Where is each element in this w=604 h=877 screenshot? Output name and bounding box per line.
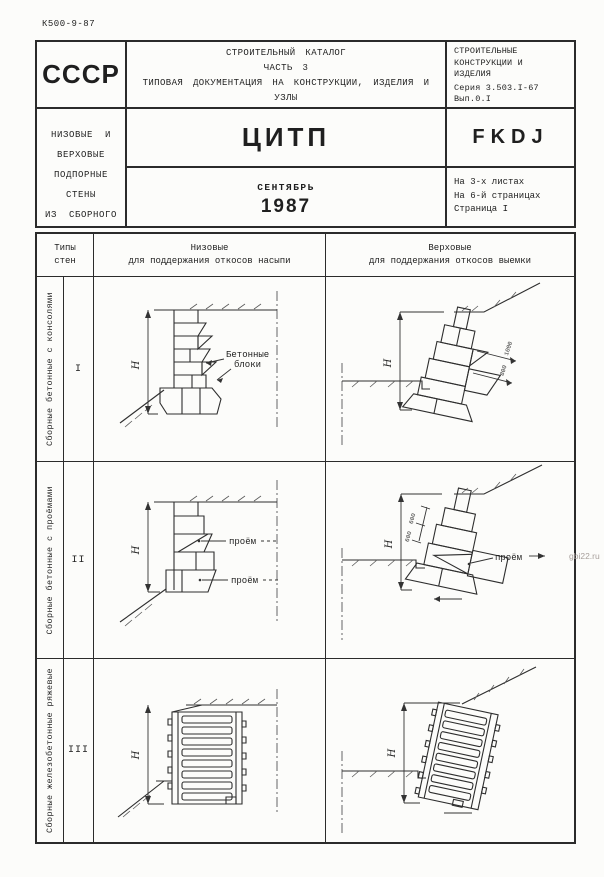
- dim-h-label: Н: [131, 750, 142, 760]
- row3-high-diagram-cell: Н: [326, 659, 574, 842]
- row2-type-label: Сборные бетонные с проёмами: [37, 462, 64, 659]
- header-cell-org: ЦИТП: [127, 109, 447, 168]
- catalog-line2: ЧАСТЬ 3: [127, 61, 445, 76]
- sheets-line1: На 3-х листах: [454, 176, 572, 190]
- doc-code: К500-9-87: [42, 19, 95, 29]
- blocks-callout: Бетонные блоки: [206, 350, 269, 383]
- country-label: СССР: [42, 59, 120, 90]
- ground-hatch: [190, 304, 261, 309]
- header-cell-subject: НИЗОВЫЕ И ВЕРХОВЫЕ ПОДПОРНЫЕ СТЕНЫ ИЗ СБ…: [37, 109, 127, 226]
- opening-label-2: проём: [231, 576, 258, 586]
- low-header-line2: для поддержания откосов насыпи: [128, 255, 290, 268]
- document-page: К500-9-87 СССР СТРОИТЕЛЬНЫЙ КАТАЛОГ ЧАСТ…: [0, 0, 604, 877]
- slope-line: [120, 390, 164, 423]
- height-dimension: Н: [131, 705, 164, 804]
- header-table: СССР СТРОИТЕЛЬНЫЙ КАТАЛОГ ЧАСТЬ 3 ТИПОВА…: [35, 40, 576, 228]
- opening-label: проём: [495, 553, 522, 563]
- year-label: 1987: [261, 196, 311, 218]
- low-header-line1: Низовые: [191, 242, 229, 255]
- slope-line: [120, 589, 166, 622]
- sheets-line3: Страница I: [454, 203, 572, 217]
- row1-high-diagram-cell: 1000 800 Н: [326, 277, 574, 462]
- dim-600-label-1: 600: [408, 512, 418, 525]
- height-dimension: Н: [383, 312, 444, 410]
- ground-line: [342, 381, 430, 389]
- header-cell-series: СТРОИТЕЛЬНЫЕ КОНСТРУКЦИИ И ИЗДЕЛИЯ Серия…: [447, 42, 574, 109]
- diagram-wall-opening-high: 600 600 проём Н: [326, 462, 572, 657]
- crib-wall: [414, 701, 502, 811]
- column-header-high: Верховые для поддержания откосов выемки: [326, 234, 574, 277]
- high-header-line1: Верховые: [428, 242, 471, 255]
- series-line2: КОНСТРУКЦИИ И: [454, 58, 572, 70]
- catalog-line3: ТИПОВАЯ ДОКУМЕНТАЦИЯ НА КОНСТРУКЦИИ, ИЗД…: [127, 76, 445, 106]
- row3-number: III: [64, 659, 94, 842]
- dim-h-label: Н: [131, 360, 142, 370]
- crib-wall: [168, 712, 246, 804]
- header-cell-code: FKDJ: [447, 109, 574, 168]
- opening-label-1: проём: [229, 537, 256, 547]
- ground-hatch: [352, 381, 413, 387]
- diagram-crib-low: Н: [94, 659, 324, 842]
- series-line4: Серия 3.503.I-67: [454, 83, 572, 95]
- ground-line: [172, 705, 277, 712]
- series-code: FKDJ: [472, 126, 548, 149]
- dim-h-label: Н: [387, 748, 398, 758]
- row3-low-diagram-cell: Н: [94, 659, 326, 842]
- header-cell-sheets: На 3-х листах На 6-й страницах Страница …: [447, 168, 574, 226]
- slope-hatch: [474, 669, 524, 700]
- dim-600-label-2: 600: [404, 530, 414, 543]
- offset-dimensions: 600 600: [404, 506, 430, 543]
- ground-hatch: [190, 496, 261, 501]
- diagram-wall-opening-low: Н проём проём: [94, 462, 324, 657]
- high-header-line2: для поддержания откосов выемки: [369, 255, 531, 268]
- height-dimension: Н: [131, 310, 158, 414]
- dim-800-label: 800: [499, 364, 509, 377]
- row1-number: I: [64, 277, 94, 462]
- series-line5: Вып.0.I: [454, 94, 572, 106]
- ground-hatch: [352, 560, 413, 566]
- diagram-wall-console-low: Н Бетонные блоки: [94, 277, 324, 460]
- blocks-label-line2: блоки: [234, 360, 261, 370]
- header-cell-catalog: СТРОИТЕЛЬНЫЙ КАТАЛОГ ЧАСТЬ 3 ТИПОВАЯ ДОК…: [127, 42, 447, 109]
- slope-line: [454, 283, 540, 312]
- header-cell-country: СССР: [37, 42, 127, 109]
- dim-h-label: Н: [384, 539, 395, 549]
- block-wall: [403, 300, 513, 425]
- dim-h-label: Н: [131, 545, 142, 555]
- offset-dimensions: 1000 800: [473, 340, 516, 386]
- types-header-line2: стен: [54, 255, 76, 268]
- dim-1000-label: 1000: [503, 340, 514, 356]
- row2-low-diagram-cell: Н проём проём: [94, 462, 326, 659]
- row1-type-label: Сборные бетонные с консолями: [37, 277, 64, 462]
- height-dimension: Н: [131, 502, 160, 592]
- block-wall: [166, 502, 216, 592]
- month-label: СЕНТЯБРЬ: [257, 182, 315, 193]
- diagram-crib-high: Н: [326, 659, 572, 842]
- blocks-label-line1: Бетонные: [226, 350, 269, 360]
- block-wall: [405, 481, 520, 599]
- row1-low-diagram-cell: Н Бетонные блоки: [94, 277, 326, 462]
- column-header-low: Низовые для поддержания откосов насыпи: [94, 234, 326, 277]
- ground-hatch: [194, 699, 265, 704]
- row2-number: II: [64, 462, 94, 659]
- types-header-line1: Типы: [54, 242, 76, 255]
- column-header-types: Типы стен: [37, 234, 94, 277]
- org-label: ЦИТП: [242, 122, 330, 153]
- slope-hatch: [462, 292, 516, 311]
- watermark: gbi22.ru: [569, 551, 600, 561]
- dim-h-label: Н: [383, 358, 394, 368]
- row3-type-label: Сборные железобетонные ряжевые: [37, 659, 64, 842]
- sheets-line2: На 6-й страницах: [454, 190, 572, 204]
- row2-high-diagram-cell: 600 600 проём Н: [326, 462, 574, 659]
- subject-line1: НИЗОВЫЕ И ВЕРХОВЫЕ ПОДПОРНЫЕ СТЕНЫ: [37, 125, 125, 205]
- slope-line: [462, 667, 536, 704]
- main-table: Типы стен Низовые для поддержания откосо…: [35, 232, 576, 844]
- height-dimension: Н: [384, 494, 442, 590]
- subject-line2: ИЗ СБОРНОГО И МОНОЛИТНОГО БЕТОНА И ЖЕЛЕЗ…: [37, 205, 125, 226]
- diagram-wall-console-high: 1000 800 Н: [326, 277, 572, 460]
- catalog-line1: СТРОИТЕЛЬНЫЙ КАТАЛОГ: [127, 46, 445, 61]
- series-line1: СТРОИТЕЛЬНЫЕ: [454, 46, 572, 58]
- header-cell-date: СЕНТЯБРЬ 1987: [127, 168, 447, 226]
- series-line3: ИЗДЕЛИЯ: [454, 69, 572, 81]
